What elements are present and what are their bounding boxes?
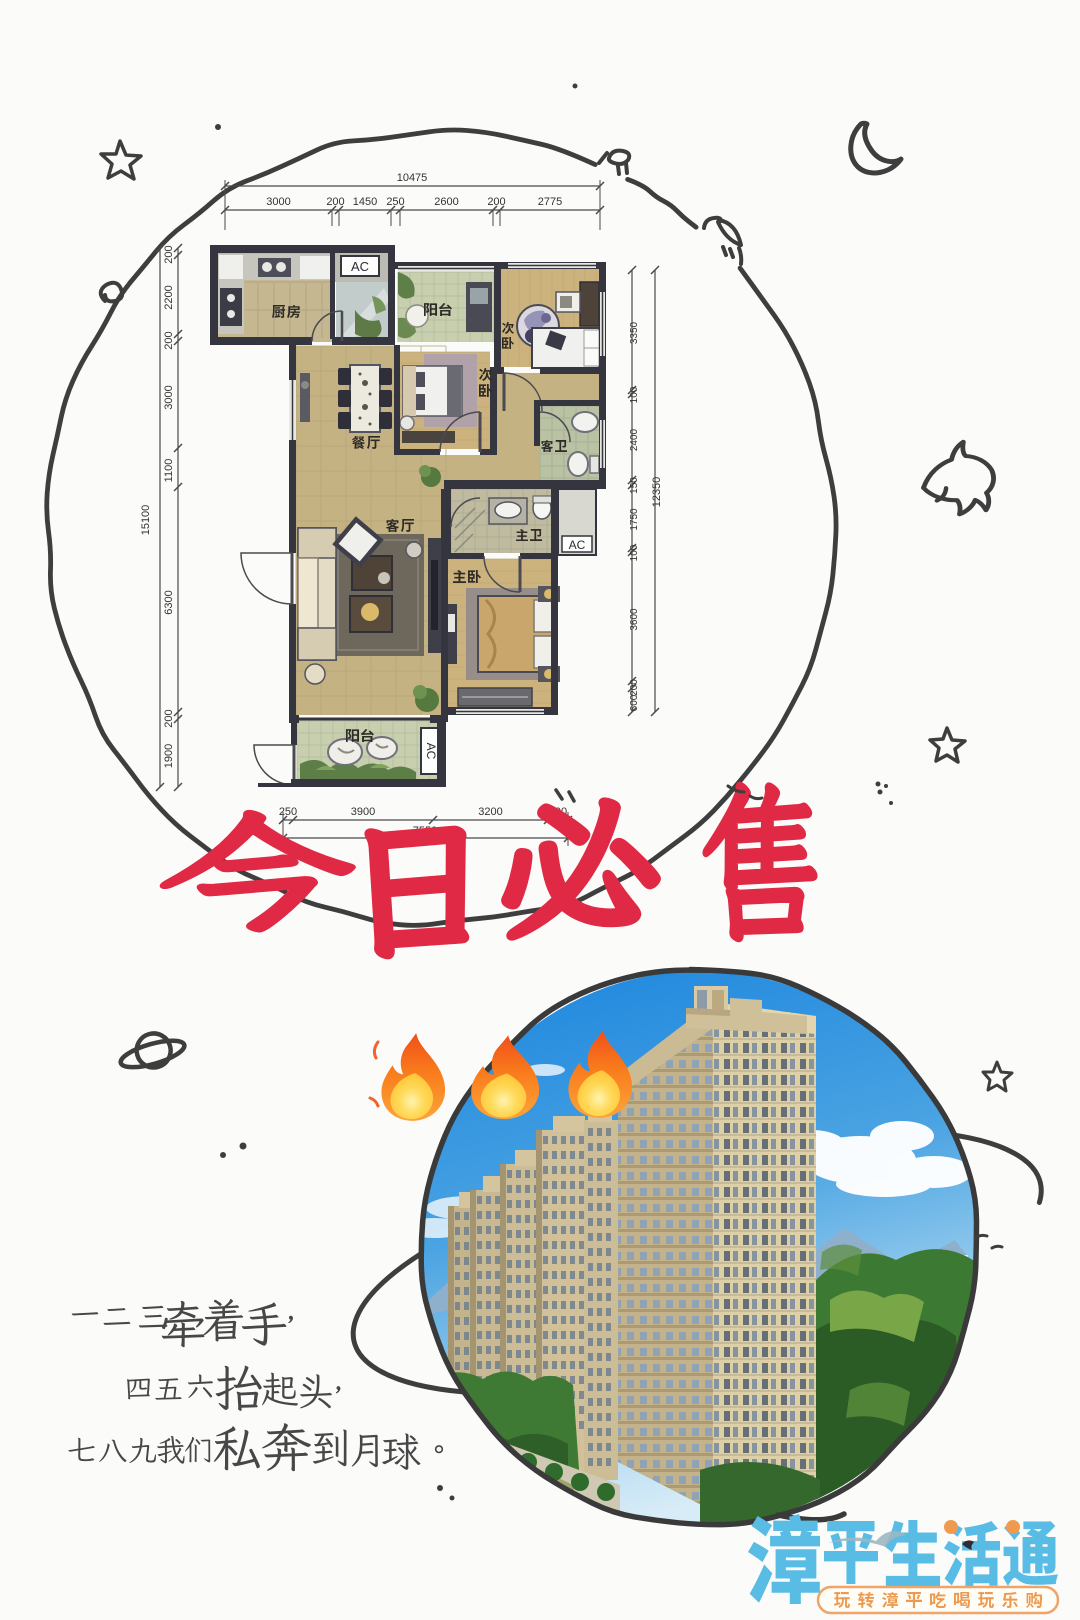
svg-text:3000: 3000 xyxy=(266,196,290,208)
svg-text:2775: 2775 xyxy=(538,196,562,208)
svg-text:1900: 1900 xyxy=(163,744,175,768)
svg-text:3000: 3000 xyxy=(163,385,175,409)
svg-text:AC: AC xyxy=(569,538,586,552)
svg-text:200: 200 xyxy=(487,196,505,208)
svg-text:100: 100 xyxy=(629,386,640,403)
svg-text:12350: 12350 xyxy=(651,477,663,508)
svg-text:1450: 1450 xyxy=(353,196,377,208)
svg-text:3350: 3350 xyxy=(629,321,640,344)
svg-text:3200: 3200 xyxy=(478,806,502,818)
svg-text:2200: 2200 xyxy=(163,285,175,309)
svg-text:200: 200 xyxy=(163,331,175,349)
svg-text:200: 200 xyxy=(163,709,175,727)
svg-text:2400: 2400 xyxy=(629,428,640,451)
svg-text:2600: 2600 xyxy=(434,196,458,208)
svg-text:250: 250 xyxy=(386,196,404,208)
svg-text:3900: 3900 xyxy=(351,806,375,818)
svg-text:AC: AC xyxy=(351,259,369,274)
svg-text:15100: 15100 xyxy=(140,505,152,536)
svg-text:1750: 1750 xyxy=(629,508,640,531)
svg-text:100: 100 xyxy=(629,544,640,561)
svg-text:200: 200 xyxy=(629,679,640,696)
svg-text:600: 600 xyxy=(629,694,640,711)
svg-text:200: 200 xyxy=(163,245,175,263)
svg-text:1100: 1100 xyxy=(163,459,175,483)
svg-text:150: 150 xyxy=(629,477,640,494)
svg-text:200: 200 xyxy=(326,196,344,208)
svg-text:6300: 6300 xyxy=(163,590,175,614)
svg-text:10475: 10475 xyxy=(397,172,428,184)
svg-text:250: 250 xyxy=(279,806,297,818)
svg-text:3600: 3600 xyxy=(629,608,640,631)
svg-text:AC: AC xyxy=(424,743,438,760)
